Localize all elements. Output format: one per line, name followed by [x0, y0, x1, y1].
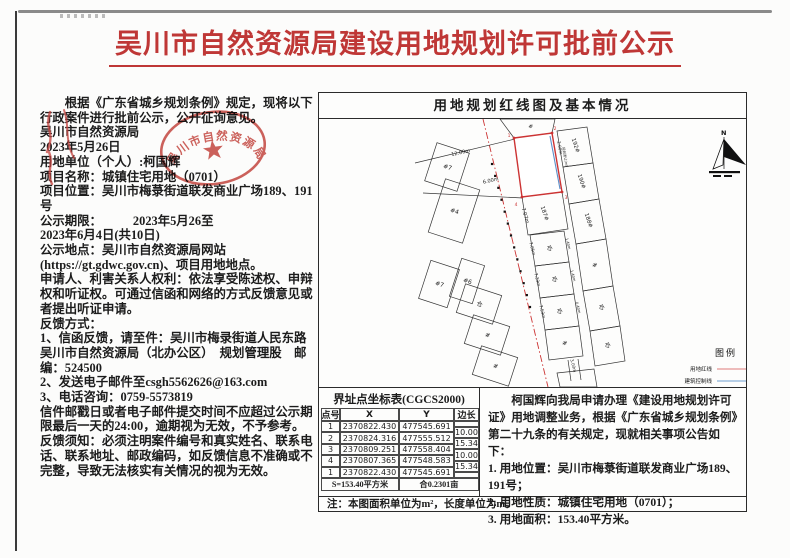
body-paragraph: 反馈方式：	[40, 317, 314, 332]
map-label: 仓	[603, 340, 611, 350]
map-label: 7.05m	[528, 241, 536, 255]
coord-cell: 2370822.430	[340, 467, 399, 478]
map-label: 7.07m	[520, 207, 530, 224]
coord-cell: 合0.2301亩	[399, 478, 479, 491]
map-label: #4	[449, 207, 460, 216]
map-label: #	[561, 339, 568, 347]
map-label: 7.33m	[533, 272, 541, 286]
map-label: 1.40m	[570, 270, 577, 283]
road-tick	[510, 234, 512, 236]
coord-cell: 1	[321, 421, 340, 432]
map-label: 仓	[545, 243, 553, 253]
announcement-paragraph: 柯国辉向我局申请办理《建设用地规划许可证》用地调整业务，根据《广东省城乡规划条例…	[488, 392, 740, 460]
map-label: 3	[565, 195, 568, 201]
body-paragraph: 根据《广东省城乡规划条例》规定，现将以下行政案件进行批前公示，公开征询意见。	[40, 96, 314, 125]
announcement-item: 1. 用地位置：吴川市梅菉街道联发商业广场189、191号；	[488, 460, 740, 494]
announcement-text: 柯国辉向我局申请办理《建设用地规划许可证》用地调整业务，根据《广东省城乡规划条例…	[479, 388, 746, 496]
coord-cell: Y	[399, 408, 454, 421]
body-paragraph: 2023年5月26日	[40, 140, 314, 155]
coord-cell: 3	[321, 444, 340, 455]
coord-cell: 477558.404	[399, 444, 454, 455]
map-label: 187#	[539, 206, 549, 223]
coord-cell: 477545.691	[399, 421, 454, 432]
map-label: 仓	[555, 306, 563, 316]
coord-cell: 1	[321, 467, 340, 478]
body-paragraph: 反馈须知：必须注明案件编号和真实姓名、联系电话、联系地址、邮政编码，如反馈信息不…	[40, 434, 314, 478]
legend-item-redline: 用地红线	[690, 365, 713, 373]
coord-cell: 2370824.316	[340, 432, 399, 443]
map-label: 192#	[570, 138, 580, 155]
map-label: 1	[508, 133, 511, 139]
coord-cell: X	[340, 408, 399, 421]
coord-table-grid: 点号XY边长12370822.430477545.69122370824.316…	[321, 408, 477, 491]
road-tick	[507, 222, 509, 224]
map-legend: 图例 用地红线 建筑控制线	[684, 347, 746, 385]
body-paragraph: 3、电话咨询：0759-5573819	[40, 390, 314, 405]
coord-cell: 4	[321, 455, 340, 466]
coord-cell: 2370809.251	[340, 444, 399, 455]
map-label: #	[591, 261, 598, 269]
coord-cell: 15.34	[454, 438, 479, 449]
coord-table-title: 界址点坐标表(CGCS2000)	[319, 391, 479, 407]
cadastral-map: 12.00m6.00m7.07m2.00m规划退让(m)192#190#188#…	[319, 119, 746, 388]
panel-bottom-section: 界址点坐标表(CGCS2000) 点号XY边长12370822.43047754…	[319, 388, 746, 496]
cadastral-map-svg: 12.00m6.00m7.07m2.00m规划退让(m)192#190#188#…	[319, 119, 748, 387]
road-tick	[513, 246, 515, 248]
coord-cell: 2370807.365	[340, 455, 399, 466]
map-label: 7.53m	[538, 304, 546, 318]
page-title: 吴川市自然资源局建设用地规划许可批前公示	[109, 22, 681, 67]
road-tick	[529, 306, 531, 308]
scan-smudge	[60, 14, 106, 18]
map-label: 仓	[476, 299, 484, 308]
map-label: #	[527, 123, 534, 130]
road-tick	[500, 199, 502, 201]
road-tick	[516, 258, 518, 260]
coord-cell: 边长	[454, 408, 479, 421]
map-label: #6	[462, 277, 473, 286]
map-label: 6.00m	[482, 176, 499, 185]
map-label: 190#	[576, 174, 586, 191]
coord-cell: S=153.40平方米	[321, 478, 399, 491]
scan-edge-left	[15, 11, 17, 551]
scan-edge-top	[18, 10, 772, 13]
map-label: #7	[442, 163, 453, 172]
north-label: N	[721, 129, 726, 137]
coord-cell: 2370822.430	[340, 421, 399, 432]
body-paragraph: 用地单位（个人）:柯国辉	[40, 155, 314, 170]
road-tick	[523, 282, 525, 284]
body-paragraph: 公示地点：吴川市自然资源局网站(https://gt.gdwc.gov.cn)、…	[40, 243, 314, 272]
body-paragraph: 1、信函反馈，请至件：吴川市梅录街道人民东路吴川市自然资源局（北办公区） 规划管…	[40, 331, 314, 375]
road-tick	[497, 187, 499, 189]
legend-title: 图例	[715, 347, 737, 359]
map-label: 1.40m	[565, 238, 572, 251]
map-label: 188#	[583, 213, 593, 230]
map-label: 3.00m	[569, 358, 577, 372]
boundary-coordinate-table: 界址点坐标表(CGCS2000) 点号XY边长12370822.43047754…	[319, 388, 479, 496]
coord-cell: 477545.691	[399, 467, 454, 478]
subject-parcel-redline	[514, 133, 562, 197]
coord-cell: 477548.583	[399, 455, 454, 466]
road-tick	[519, 270, 521, 272]
announcement-item: 3. 用地面积：153.40平方米。	[488, 511, 740, 528]
west-parcels	[419, 143, 518, 386]
announcement-items: 1. 用地位置：吴川市梅菉街道联发商业广场189、191号；2. 用地性质：城镇…	[488, 460, 740, 528]
body-paragraph: 项目名称：城镇住宅用地（0701）	[40, 170, 314, 185]
north-arrow-icon: N	[709, 129, 746, 177]
map-label: #	[484, 331, 491, 339]
road-tick	[526, 294, 528, 296]
legend-item-blueline: 建筑控制线	[684, 377, 712, 385]
map-label: 0.40m	[575, 302, 582, 315]
map-label: 仓	[597, 302, 605, 312]
map-label: #	[492, 362, 499, 370]
notice-body: 根据《广东省城乡规划条例》规定，现将以下行政案件进行批前公示，公开征询意见。吴川…	[40, 96, 314, 478]
body-paragraph: 吴川市自然资源局	[40, 125, 314, 140]
coord-cell: 15.34	[454, 461, 479, 472]
coord-cell: 477555.512	[399, 432, 454, 443]
announcement-item: 2. 用地性质：城镇住宅用地（0701）；	[488, 494, 740, 511]
coord-cell: 点号	[321, 408, 340, 421]
map-label: 仓	[550, 274, 558, 284]
map-panel-title: 用地规划红线图及基本情况	[319, 93, 746, 119]
scanned-notice-page: 吴川市自然资源局建设用地规划许可批前公示 根据《广东省城乡规划条例》规定，现将以…	[0, 0, 790, 558]
body-paragraph: 信件邮戳日或者电子邮件提交时间不应超过公示期限最后一天的24:00，逾期视为无效…	[40, 405, 314, 434]
map-label: #7	[434, 280, 445, 289]
body-paragraph: 项目位置：吴川市梅菉街道联发商业广场189、191号	[40, 184, 314, 213]
body-paragraph: 公示期限： 2023年5月26至	[40, 214, 314, 229]
body-paragraph: 申请人、利害关系人权利：依法享受陈述权、申辩权和听证权。可通过信函和网络的方式反…	[40, 272, 314, 316]
map-label: 4	[515, 202, 518, 208]
road-tick	[491, 163, 493, 165]
body-paragraph: 2、发送电子邮件至csgh5562626@163.com	[40, 375, 314, 390]
map-label: 2	[554, 126, 557, 132]
coord-cell: 2	[321, 432, 340, 443]
street-edge	[423, 193, 523, 198]
body-paragraph: 2023年6月4日(共10日)	[40, 228, 314, 243]
road-tick	[504, 211, 506, 213]
redline-map-panel: 用地规划红线图及基本情况	[318, 92, 747, 512]
page-title-row: 吴川市自然资源局建设用地规划许可批前公示	[0, 22, 790, 67]
coord-cell: 10.00	[454, 449, 479, 460]
coord-cell: 10.00	[454, 427, 479, 438]
